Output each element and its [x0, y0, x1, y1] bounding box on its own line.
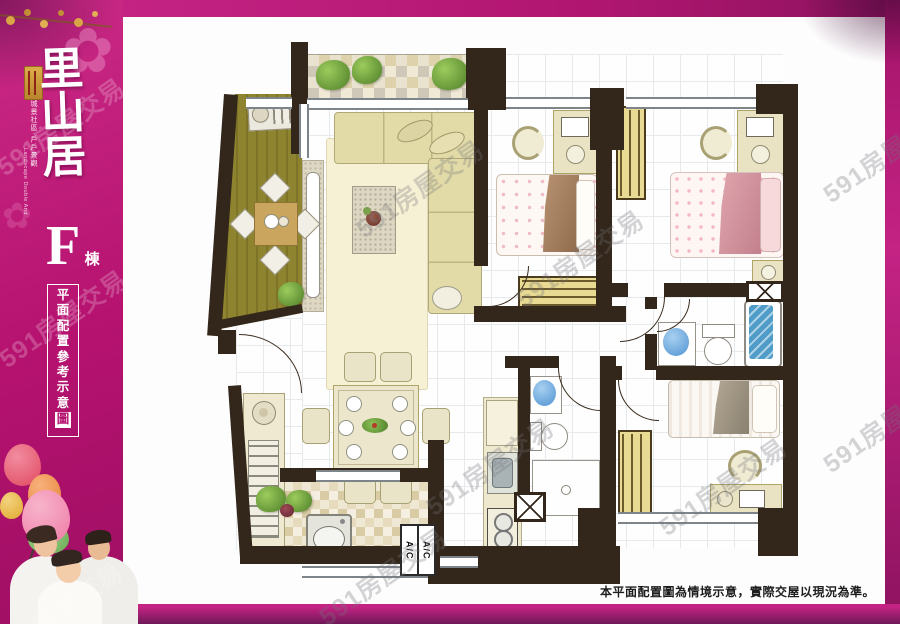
flyer-canvas: ✿ ✿ 里 山 居 城景社區·戶戶景觀 Landscape Double And… — [0, 0, 900, 624]
window-bedroom2 — [506, 97, 590, 109]
title-char-2: 山 — [35, 91, 91, 137]
coffee-table — [352, 186, 396, 254]
plum-branch — [0, 4, 120, 40]
title-char-3: 居 — [37, 135, 93, 181]
window-bedroom3 — [618, 512, 758, 524]
ac-unit-2: A/C — [417, 524, 436, 576]
planter-plant — [316, 60, 350, 90]
window-master — [626, 97, 756, 109]
bath1-toilet — [700, 324, 736, 366]
building-letter: F — [46, 215, 80, 277]
bedroom2-blanket — [543, 175, 579, 252]
project-subtitle-en: Landscape Double And — [22, 148, 28, 243]
pipe-shaft-2 — [514, 492, 546, 522]
window-living-planter — [307, 98, 468, 110]
wall — [590, 88, 624, 150]
wall — [518, 368, 530, 492]
wall — [466, 48, 506, 110]
wall — [612, 366, 622, 380]
dining-chair — [380, 352, 412, 382]
dining-plate — [392, 396, 408, 412]
master-bed — [670, 172, 784, 258]
balloon-yellow — [0, 492, 23, 519]
dining-chair — [422, 408, 450, 444]
project-title: 里 山 居 — [34, 47, 93, 181]
sofa-ottoman — [432, 286, 462, 310]
dining-chair — [344, 352, 376, 382]
master-desk — [737, 110, 784, 174]
dining-plate — [338, 420, 354, 436]
window-balcony-living — [299, 104, 309, 158]
balcony-table — [254, 202, 298, 246]
bath2-sink-counter — [530, 376, 562, 414]
wall — [656, 366, 798, 380]
wall — [596, 148, 612, 308]
bedroom3-blanket — [713, 381, 749, 434]
frame-top-strip — [123, 0, 900, 17]
wall-right-exterior — [783, 92, 798, 556]
dining-plate — [346, 444, 362, 460]
pipe-shaft — [746, 281, 784, 302]
frame-corner-shade — [790, 0, 900, 70]
window-kitchen — [440, 556, 478, 568]
wall — [645, 334, 657, 370]
master-pillow — [760, 178, 781, 252]
wall — [474, 306, 626, 322]
kitchen-sink — [487, 452, 518, 494]
window-balcony-top — [246, 97, 292, 109]
wall — [612, 283, 628, 297]
master-chair — [700, 126, 732, 160]
planter-plant — [352, 56, 382, 84]
family-photo — [0, 430, 160, 624]
frame-right-strip — [885, 0, 900, 624]
dining-plate — [346, 396, 362, 412]
disclaimer-text: 本平面配置圖為情境示意，實際交屋以現況為準。 — [600, 583, 862, 600]
living-rug — [326, 138, 428, 390]
master-blanket — [719, 173, 761, 254]
dining-centerpiece — [362, 418, 388, 433]
person-girl-shirt — [38, 580, 102, 624]
kitchen-cabinet — [486, 400, 518, 446]
planter-plant — [432, 58, 468, 90]
bedroom2-pillow — [576, 180, 595, 250]
bedroom2-wardrobe — [518, 276, 608, 310]
building-label: F 棟 — [46, 214, 116, 274]
building-suffix: 棟 — [85, 251, 100, 268]
bedroom2-chair — [512, 126, 544, 160]
bedroom3-pillow — [752, 385, 777, 433]
wall — [474, 108, 488, 266]
bedroom3-chair — [728, 450, 762, 482]
project-subtitle: 城景社區·戶戶景觀 — [28, 100, 38, 220]
plan-note-box: 平 面 配 置 參 考 示 意 圖 — [47, 284, 79, 437]
wall-pier — [758, 508, 798, 556]
bath1-bathtub — [744, 300, 782, 368]
dining-plate — [392, 444, 408, 460]
balcony-plant — [278, 282, 304, 306]
dining-chair — [302, 408, 330, 444]
frame-bottom-strip — [123, 604, 900, 624]
dining-plate — [400, 420, 416, 436]
utility-plant-red — [280, 504, 294, 517]
title-char-1: 里 — [34, 47, 90, 93]
window-utility-top — [316, 470, 400, 482]
wall-pier — [578, 508, 616, 556]
bath2-toilet — [530, 420, 568, 452]
wall — [505, 356, 559, 368]
bedroom2-bed — [496, 174, 598, 256]
bedroom3-bed — [668, 380, 780, 438]
bedroom3-wardrobe — [618, 430, 652, 520]
wall — [600, 356, 616, 520]
